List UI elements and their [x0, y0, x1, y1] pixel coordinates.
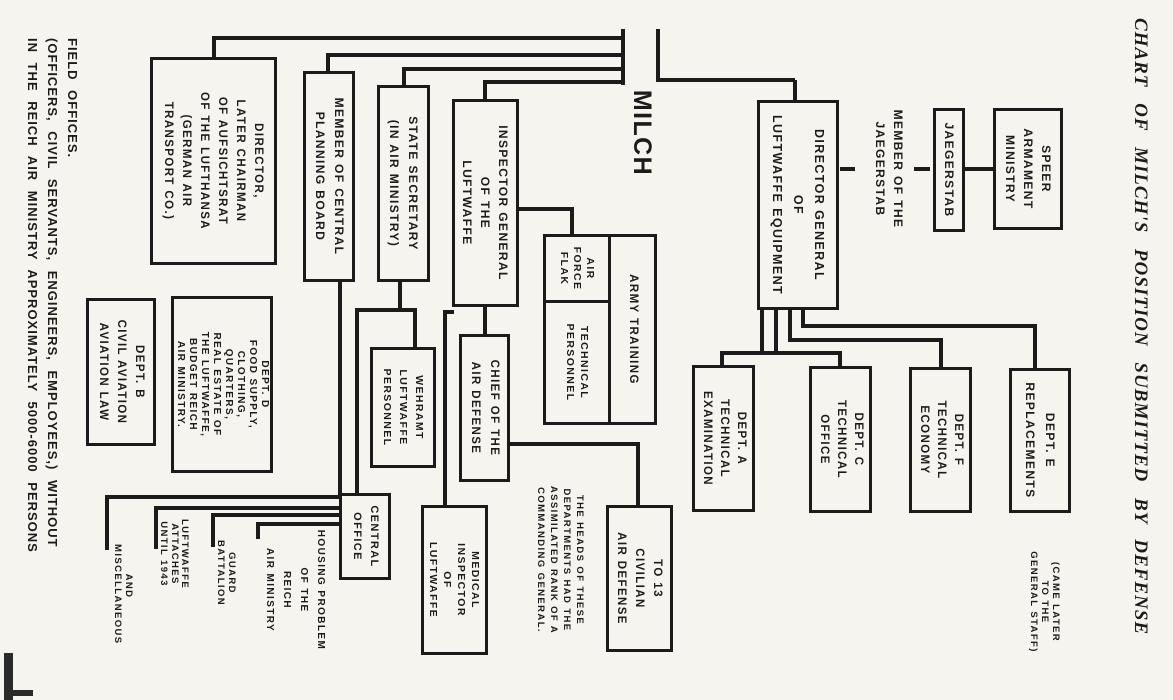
node-inspector-general-of-the-luftwaffe-line-2: OF THE: [477, 102, 495, 304]
node-luftwaffe-attaches-label-line-2: ATTACHES: [168, 516, 179, 592]
node-dept-f-technical-economy-line-3: ECONOMY: [915, 370, 932, 510]
node-medical-inspector-of-luftwaffe-line-1: MEDICAL: [469, 508, 483, 652]
node-director-lufthansa-line-4: OF THE LUFTHANSA: [196, 60, 214, 262]
node-dept-d-food-supply: DEPT. DFOOD SUPPLY,CLOTHING,QUARTERS,REA…: [171, 296, 273, 473]
page-title: CHART OF MILCH'S POSITION SUBMITTED BY D…: [1129, 18, 1151, 635]
node-dept-e-replacements: DEPT. EREPLACEMENTS: [1009, 368, 1071, 513]
node-speer-armament-ministry-line-1: SPEER: [1037, 111, 1055, 227]
node-speer-armament-ministry-line-3: MINISTRY: [1001, 111, 1019, 227]
node-to-13-civilian-air-defense-line-2: CIVILIAN: [631, 508, 649, 649]
connector-line: [788, 338, 943, 342]
node-dept-b-civil-aviation: DEPT. BCIVIL AVIATIONAVIATION LAW: [86, 298, 156, 446]
node-member-central-planning-board-line-2: PLANNING BOARD: [310, 74, 329, 279]
node-speer-armament-ministry: SPEERARMAMENTMINISTRY: [993, 108, 1063, 230]
node-housing-problem-label-line-4: AIR MINISTRY: [261, 523, 278, 657]
node-wehramt-luftwaffe-personnel: WEHRAMTLUFTWAFFEPERSONNEL: [370, 347, 436, 468]
node-dept-a-technical-examination-line-1: DEPT. A: [732, 368, 749, 509]
connector-line: [212, 36, 625, 40]
node-dept-c-technical-office-line-1: DEPT. C: [849, 369, 866, 510]
node-housing-problem-label-line-2: OF THE: [295, 523, 312, 657]
node-chief-of-the-air-defense-line-2: AIR DEFENSE: [466, 337, 485, 479]
node-and-miscellaneous-label-line-1: AND: [123, 544, 134, 628]
connector-line: [211, 513, 341, 517]
node-housing-problem-label: HOUSING PROBLEMOF THEREICHAIR MINISTRY: [259, 523, 331, 657]
connector-line: [355, 308, 359, 495]
connector-line: [793, 80, 797, 102]
node-director-lufthansa: DIRECTOR,LATER CHAIRMANOF AUFSICHTSRATOF…: [150, 57, 277, 265]
node-member-central-planning-board-line-1: MEMBER OF CENTRAL: [329, 74, 348, 279]
node-director-general-luftwaffe-equipment-line-2: OF: [788, 103, 809, 307]
node-inspector-general-of-the-luftwaffe: INSPECTOR GENERALOF THELUFTWAFFE: [452, 99, 519, 307]
connector-line: [914, 167, 930, 171]
connector-line: [443, 310, 447, 507]
node-inspector-general-of-the-luftwaffe-line-3: LUFTWAFFE: [459, 102, 477, 304]
node-dept-d-food-supply-line-7: BUDGET REICH: [186, 299, 198, 470]
node-director-lufthansa-line-5: (GERMAN AIR: [178, 60, 196, 262]
connector-line: [656, 78, 795, 82]
node-dept-c-technical-office: DEPT. CTECHNICALOFFICE: [809, 366, 872, 513]
node-dept-d-food-supply-line-6: THE LUFTWAFFE,: [198, 299, 210, 470]
node-member-of-the-jaegerstab-line-2: JAEGERSTAB: [871, 90, 889, 248]
node-assimilated-rank-note-line-1: THE HEADS OF THESE: [573, 476, 586, 644]
node-dept-d-food-supply-line-4: QUARTERS,: [222, 299, 234, 470]
node-medical-inspector-of-luftwaffe-line-3: OF: [441, 508, 455, 652]
connector-line: [517, 207, 574, 211]
node-air-force-flak: AIRFORCEFLAK: [543, 234, 611, 303]
node-director-lufthansa-line-6: TRANSPORT CO.): [160, 60, 178, 262]
node-assimilated-rank-note-line-2: DEPARTMENTS HAD THE: [560, 476, 573, 644]
node-central-office: CENTRALOFFICE: [339, 493, 391, 580]
node-dept-f-technical-economy-line-1: DEPT. F: [949, 370, 966, 510]
scan-edge-artifact: [8, 690, 33, 696]
connector-line: [964, 167, 993, 171]
node-dept-d-food-supply-line-8: AIR MINISTRY.: [174, 299, 186, 470]
scanned-page: CHART OF MILCH'S POSITION SUBMITTED BY D…: [0, 0, 1173, 700]
connector-line: [483, 80, 487, 101]
node-technical-personnel-line-2: PERSONNEL: [563, 303, 577, 422]
node-director-general-luftwaffe-equipment-line-1: DIRECTOR GENERAL: [809, 103, 830, 307]
node-guard-battalion-label-line-2: BATTALION: [215, 528, 226, 618]
node-guard-battalion-label-line-1: GUARD: [226, 528, 237, 618]
node-technical-personnel-line-1: TECHNICAL: [577, 303, 591, 422]
node-dept-c-technical-office-line-2: TECHNICAL: [832, 369, 849, 510]
node-milch: MILCH: [625, 86, 659, 180]
node-air-force-flak-line-1: AIR: [584, 237, 597, 300]
node-central-office-line-2: OFFICE: [348, 496, 365, 577]
connector-line: [801, 324, 1037, 328]
node-medical-inspector-of-luftwaffe-line-2: INSPECTOR: [455, 508, 469, 652]
connector-line: [508, 442, 640, 446]
node-housing-problem-label-line-1: HOUSING PROBLEM: [312, 523, 329, 657]
node-dept-b-civil-aviation-line-1: DEPT. B: [130, 301, 148, 443]
node-speer-armament-ministry-line-2: ARMAMENT: [1019, 111, 1037, 227]
connector-line: [212, 36, 216, 59]
connector-line: [840, 167, 855, 171]
node-guard-battalion-label: GUARDBATTALION: [214, 528, 237, 618]
node-came-later-note: (CAME LATERTO THEGENERAL STAFF): [1025, 538, 1065, 666]
connector-line: [338, 280, 342, 495]
node-housing-problem-label-line-3: REICH: [278, 523, 295, 657]
node-member-of-the-jaegerstab-line-1: MEMBER OF THE: [889, 90, 907, 248]
node-wehramt-luftwaffe-personnel-line-2: LUFTWAFFE: [395, 350, 411, 465]
node-army-training: ARMY TRAINING: [608, 234, 657, 425]
node-to-13-civilian-air-defense: TO 13CIVILIANAIR DEFENSE: [606, 505, 673, 652]
node-luftwaffe-attaches-label-line-1: LUFTWAFFE: [179, 516, 190, 592]
node-member-central-planning-board: MEMBER OF CENTRALPLANNING BOARD: [303, 71, 355, 282]
node-dept-a-technical-examination-line-2: TECHNICAL: [715, 368, 732, 509]
connector-line: [413, 308, 417, 349]
connector-line: [1033, 324, 1037, 370]
node-dept-f-technical-economy: DEPT. FTECHNICALECONOMY: [909, 367, 972, 513]
node-luftwaffe-attaches-label-line-3: UNTIL 1943: [158, 516, 169, 592]
node-dept-c-technical-office-line-3: OFFICE: [815, 369, 832, 510]
connector-line: [656, 29, 660, 82]
node-jaegerstab: JAEGERSTAB: [933, 108, 965, 232]
connector-line: [760, 310, 764, 355]
node-came-later-note-line-3: GENERAL STAFF): [1029, 538, 1040, 666]
node-assimilated-rank-note-line-3: ASSIMILATED RANK OF A: [547, 476, 560, 644]
node-state-secretary-line-1: STATE SECRETARY: [404, 88, 423, 279]
node-dept-d-food-supply-line-5: REAL ESTATE OF: [210, 299, 222, 470]
node-technical-personnel: TECHNICALPERSONNEL: [543, 300, 611, 425]
node-dept-d-food-supply-line-2: FOOD SUPPLY,: [246, 299, 258, 470]
connector-line: [939, 338, 943, 369]
connector-line: [636, 442, 640, 507]
connector-line: [154, 506, 341, 510]
node-to-13-civilian-air-defense-line-3: AIR DEFENSE: [613, 508, 631, 649]
connector-line: [483, 305, 487, 336]
node-director-general-luftwaffe-equipment: DIRECTOR GENERALOFLUFTWAFFE EQUIPMENT: [757, 100, 839, 310]
node-assimilated-rank-note-line-4: COMMANDING GENERAL.: [534, 476, 547, 644]
node-dept-d-food-supply-line-3: CLOTHING,: [234, 299, 246, 470]
node-jaegerstab-line-1: JAEGERSTAB: [942, 111, 956, 229]
node-inspector-general-of-the-luftwaffe-line-1: INSPECTOR GENERAL: [495, 102, 513, 304]
node-wehramt-luftwaffe-personnel-line-1: WEHRAMT: [411, 350, 427, 465]
node-dept-b-civil-aviation-line-2: CIVIL AVIATION: [112, 301, 130, 443]
node-air-force-flak-line-2: FORCE: [571, 237, 584, 300]
connector-line: [105, 495, 341, 499]
node-wehramt-luftwaffe-personnel-line-3: PERSONNEL: [379, 350, 395, 465]
connector-line: [105, 495, 109, 550]
footnote-line-2: (OFFICERS, CIVIL SERVANTS, ENGINEERS, EM…: [42, 38, 62, 553]
node-dept-f-technical-economy-line-2: TECHNICAL: [932, 370, 949, 510]
node-dept-e-replacements-line-2: REPLACEMENTS: [1020, 371, 1040, 510]
node-director-general-luftwaffe-equipment-line-3: LUFTWAFFE EQUIPMENT: [767, 103, 788, 307]
node-director-lufthansa-line-3: OF AUFSICHTSRAT: [214, 60, 232, 262]
node-army-training-line-1: ARMY TRAINING: [625, 237, 640, 422]
connector-line: [570, 207, 574, 236]
node-director-lufthansa-line-2: LATER CHAIRMAN: [232, 60, 250, 262]
node-director-lufthansa-line-1: DIRECTOR,: [250, 60, 268, 262]
node-came-later-note-line-1: (CAME LATER: [1051, 538, 1062, 666]
connector-line: [355, 308, 417, 312]
node-milch-line-1: MILCH: [627, 86, 657, 180]
footnote-line-3: IN THE REICH AIR MINISTRY APPROXIMATELY …: [22, 38, 42, 553]
connector-line: [483, 80, 625, 84]
node-chief-of-the-air-defense-line-1: CHIEF OF THE: [485, 337, 504, 479]
connector-line: [326, 53, 330, 73]
node-dept-b-civil-aviation-line-3: AVIATION LAW: [94, 301, 112, 443]
connector-line: [326, 53, 625, 57]
node-dept-e-replacements-line-1: DEPT. E: [1040, 371, 1060, 510]
node-dept-d-food-supply-line-1: DEPT. D: [258, 299, 270, 470]
node-air-force-flak-line-3: FLAK: [558, 237, 571, 300]
node-and-miscellaneous-label: ANDMISCELLANEOUS: [111, 544, 134, 628]
footnote: FIELD OFFICES. (OFFICERS, CIVIL SERVANTS…: [22, 38, 82, 553]
node-came-later-note-line-2: TO THE: [1040, 538, 1051, 666]
node-member-of-the-jaegerstab: MEMBER OF THEJAEGERSTAB: [869, 90, 909, 248]
connector-line: [774, 310, 778, 355]
node-chief-of-the-air-defense: CHIEF OF THEAIR DEFENSE: [459, 334, 510, 482]
node-and-miscellaneous-label-line-2: MISCELLANEOUS: [112, 544, 123, 628]
node-dept-a-technical-examination: DEPT. ATECHNICALEXAMINATION: [692, 365, 755, 512]
node-assimilated-rank-note: THE HEADS OF THESEDEPARTMENTS HAD THEASS…: [529, 476, 591, 644]
chart-sheet: CHART OF MILCH'S POSITION SUBMITTED BY D…: [0, 0, 1173, 700]
connector-line: [402, 67, 406, 87]
node-luftwaffe-attaches-label: LUFTWAFFEATTACHESUNTIL 1943: [157, 516, 190, 592]
node-dept-a-technical-examination-line-3: EXAMINATION: [698, 368, 715, 509]
node-to-13-civilian-air-defense-line-1: TO 13: [649, 508, 667, 649]
node-central-office-line-1: CENTRAL: [365, 496, 382, 577]
node-state-secretary: STATE SECRETARY(IN AIR MINISTRY): [377, 85, 430, 282]
connector-line: [402, 67, 625, 71]
footnote-line-1: FIELD OFFICES.: [62, 38, 82, 553]
connector-line: [720, 351, 842, 355]
node-medical-inspector-of-luftwaffe-line-4: LUFTWAFFE: [427, 508, 441, 652]
node-state-secretary-line-2: (IN AIR MINISTRY): [385, 88, 404, 279]
node-medical-inspector-of-luftwaffe: MEDICALINSPECTOROFLUFTWAFFE: [421, 505, 488, 655]
